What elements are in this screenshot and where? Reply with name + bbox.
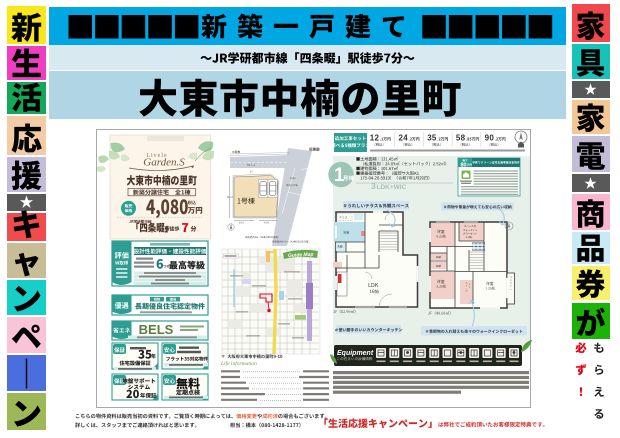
svg-text:35: 35 <box>427 134 437 143</box>
svg-text:12: 12 <box>370 134 380 143</box>
svg-text:90: 90 <box>485 134 495 143</box>
svg-text:80: 80 <box>461 162 467 168</box>
svg-text:Garden.S: Garden.S <box>143 157 185 169</box>
svg-text:Life information: Life information <box>220 360 257 367</box>
svg-text:LDK+WIC: LDK+WIC <box>377 184 407 191</box>
svg-text:58: 58 <box>456 134 466 143</box>
svg-text:Equipment: Equipment <box>337 350 374 357</box>
svg-text:3: 3 <box>371 181 376 191</box>
svg-text:24: 24 <box>399 134 409 143</box>
svg-text:BELS: BELS <box>139 322 174 337</box>
svg-text:1: 1 <box>334 165 345 186</box>
